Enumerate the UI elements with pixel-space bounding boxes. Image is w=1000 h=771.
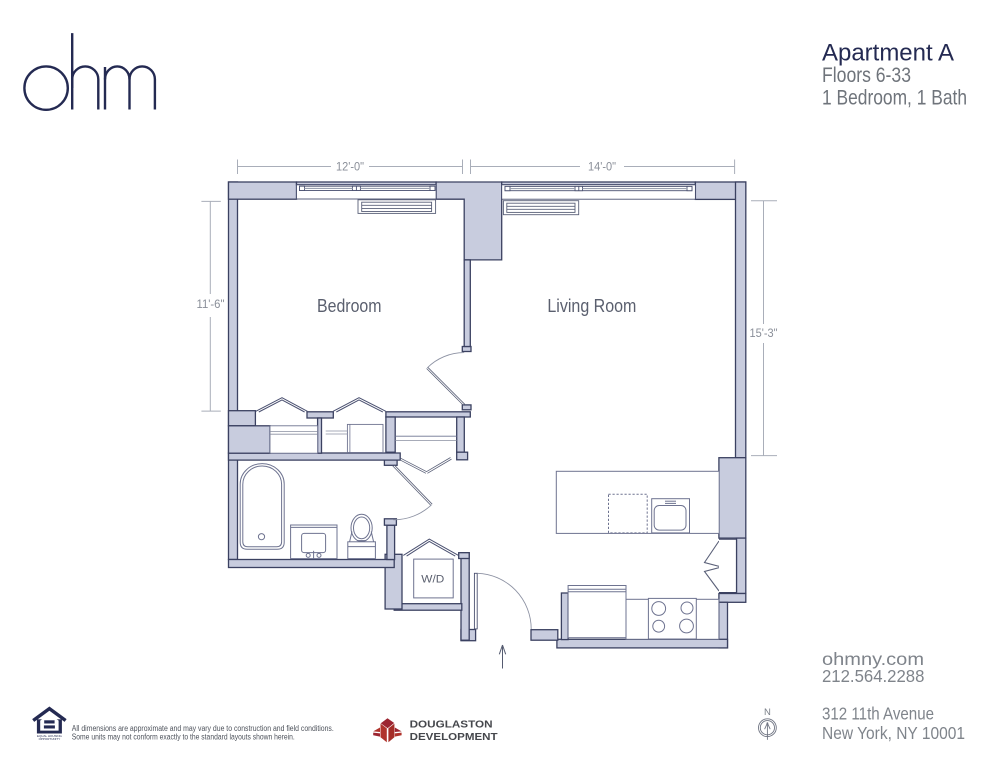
svg-text:Floors 6-33: Floors 6-33 — [822, 63, 911, 87]
svg-text:New York, NY 10001: New York, NY 10001 — [822, 723, 965, 743]
svg-text:DEVELOPMENT: DEVELOPMENT — [410, 731, 499, 743]
svg-text:14'-0": 14'-0" — [588, 162, 616, 174]
svg-text:Some units may not conform exa: Some units may not conform exactly to th… — [72, 732, 295, 741]
svg-text:15'-3": 15'-3" — [750, 328, 778, 340]
svg-text:DOUGLASTON: DOUGLASTON — [410, 719, 493, 731]
svg-text:12'-0": 12'-0" — [336, 162, 364, 174]
svg-text:312 11th Avenue: 312 11th Avenue — [822, 704, 934, 724]
svg-text:Living Room: Living Room — [547, 295, 636, 316]
svg-text:OPPORTUNITY: OPPORTUNITY — [39, 737, 61, 741]
svg-text:N: N — [764, 707, 771, 718]
svg-text:W/D: W/D — [421, 574, 444, 586]
svg-text:Bedroom: Bedroom — [317, 295, 382, 316]
svg-text:1 Bedroom, 1 Bath: 1 Bedroom, 1 Bath — [822, 86, 967, 110]
svg-text:212.564.2288: 212.564.2288 — [822, 666, 924, 686]
svg-text:11'-6": 11'-6" — [197, 299, 225, 311]
